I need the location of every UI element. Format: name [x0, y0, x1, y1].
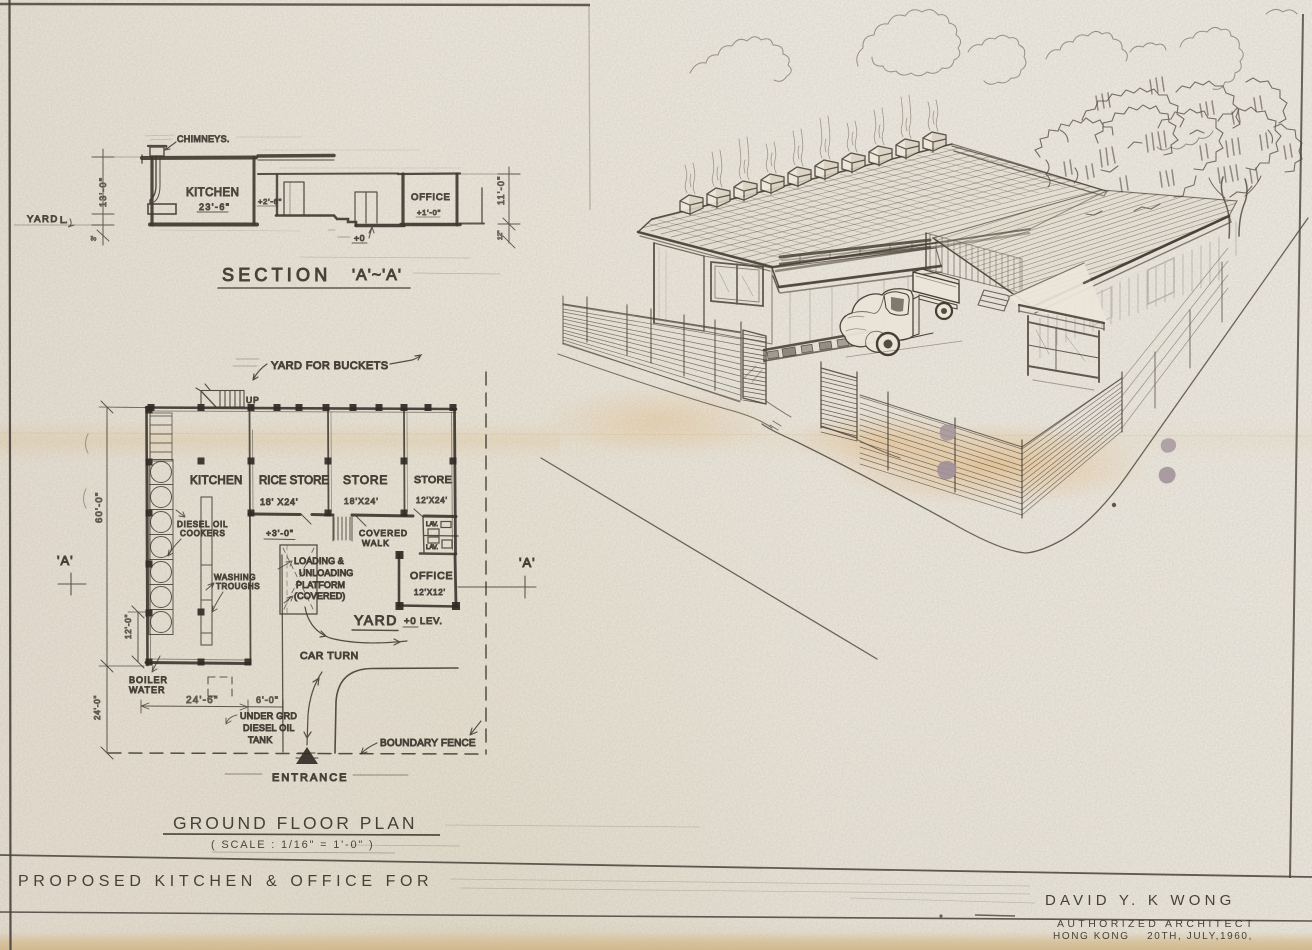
- svg-text:CHIMNEYS.: CHIMNEYS.: [177, 134, 230, 144]
- svg-text:WASHING: WASHING: [214, 573, 256, 582]
- svg-text:18' X24': 18' X24': [260, 497, 298, 507]
- svg-text:BOILER: BOILER: [129, 675, 168, 685]
- svg-text:18'X24': 18'X24': [344, 496, 379, 506]
- svg-text:24'-6": 24'-6": [186, 695, 219, 706]
- svg-text:6'-0": 6'-0": [256, 695, 279, 705]
- svg-text:24'-0": 24'-0": [93, 695, 102, 720]
- svg-text:12'-0": 12'-0": [124, 614, 133, 639]
- svg-text:OFFICE: OFFICE: [411, 192, 451, 203]
- svg-text:12'X12': 12'X12': [414, 588, 446, 597]
- svg-text:UP: UP: [246, 395, 260, 405]
- svg-text:UNLOADING: UNLOADING: [299, 568, 353, 578]
- svg-text:PLATFORM: PLATFORM: [296, 580, 345, 590]
- svg-text:+3'-0": +3'-0": [266, 528, 294, 538]
- svg-text:3': 3': [91, 236, 98, 241]
- svg-text:LOADING &: LOADING &: [294, 556, 344, 566]
- svg-text:COVERED: COVERED: [359, 528, 408, 538]
- svg-text:23'-6": 23'-6": [199, 202, 230, 212]
- svg-text:(COVERED): (COVERED): [294, 591, 345, 601]
- svg-text:PROPOSED KITCHEN & OFFICE: PROPOSED KITCHEN & OFFICE FOR: [18, 873, 433, 890]
- svg-text:+0 LEV.: +0 LEV.: [404, 616, 443, 627]
- svg-text:KITCHEN: KITCHEN: [190, 475, 243, 487]
- svg-text:YARD FOR BUCKETS: YARD FOR BUCKETS: [271, 360, 388, 372]
- svg-text:12'X24': 12'X24': [416, 496, 448, 505]
- svg-text:+2'-6": +2'-6": [258, 197, 282, 206]
- svg-text:HONG KONG 20TH, JULY,1960,: HONG KONG 20TH, JULY,1960,: [1053, 931, 1253, 942]
- svg-text:L.: L.: [60, 215, 68, 225]
- svg-text:+0: +0: [354, 233, 365, 243]
- svg-text:11'-0": 11'-0": [496, 176, 506, 205]
- svg-text:13'-0": 13'-0": [98, 177, 108, 207]
- svg-text:ENTRANCE: ENTRANCE: [272, 772, 349, 784]
- svg-text:TROUGHS: TROUGHS: [216, 582, 260, 591]
- svg-text:YARD: YARD: [354, 612, 398, 628]
- svg-text:YARD: YARD: [27, 214, 59, 225]
- svg-text:KITCHEN: KITCHEN: [186, 187, 239, 199]
- svg-text:CAR TURN: CAR TURN: [300, 650, 359, 662]
- svg-text:GROUND FLOOR PLAN: GROUND FLOOR PLAN: [173, 813, 418, 833]
- svg-text:DIESEL OIL: DIESEL OIL: [243, 723, 295, 733]
- svg-text:BOUNDARY FENCE: BOUNDARY FENCE: [380, 738, 476, 749]
- svg-text:WATER: WATER: [129, 685, 166, 695]
- svg-text:STORE: STORE: [343, 473, 388, 487]
- svg-text:WALK: WALK: [362, 538, 390, 548]
- svg-text:60'-0": 60'-0": [94, 492, 105, 523]
- svg-text:AUTHORIZED ARCHITECT: AUTHORIZED ARCHITECT: [1057, 918, 1256, 930]
- svg-text:DIESEL OIL: DIESEL OIL: [177, 520, 228, 529]
- svg-text:+1'-0": +1'-0": [417, 208, 441, 217]
- svg-text:SECTION: SECTION: [222, 265, 331, 285]
- svg-text:RICE STORE: RICE STORE: [259, 475, 329, 487]
- svg-text:'A': 'A': [57, 553, 74, 568]
- svg-text:DAVID Y. K WONG: DAVID Y. K WONG: [1045, 892, 1236, 909]
- svg-text:LAV.: LAV.: [426, 522, 438, 528]
- svg-text:OFFICE: OFFICE: [410, 570, 453, 582]
- svg-text:LAV.: LAV.: [426, 545, 438, 551]
- svg-text:TANK: TANK: [248, 735, 273, 745]
- svg-text:'A': 'A': [519, 555, 536, 570]
- svg-text:'A'~'A': 'A'~'A': [352, 267, 402, 284]
- svg-text:STORE: STORE: [414, 474, 452, 486]
- svg-text:12": 12": [497, 230, 504, 240]
- svg-text:UNDER GRD: UNDER GRD: [240, 711, 297, 721]
- svg-text:( SCALE : 1/16" = 1'-0" ): ( SCALE : 1/16" = 1'-0" ): [211, 839, 374, 851]
